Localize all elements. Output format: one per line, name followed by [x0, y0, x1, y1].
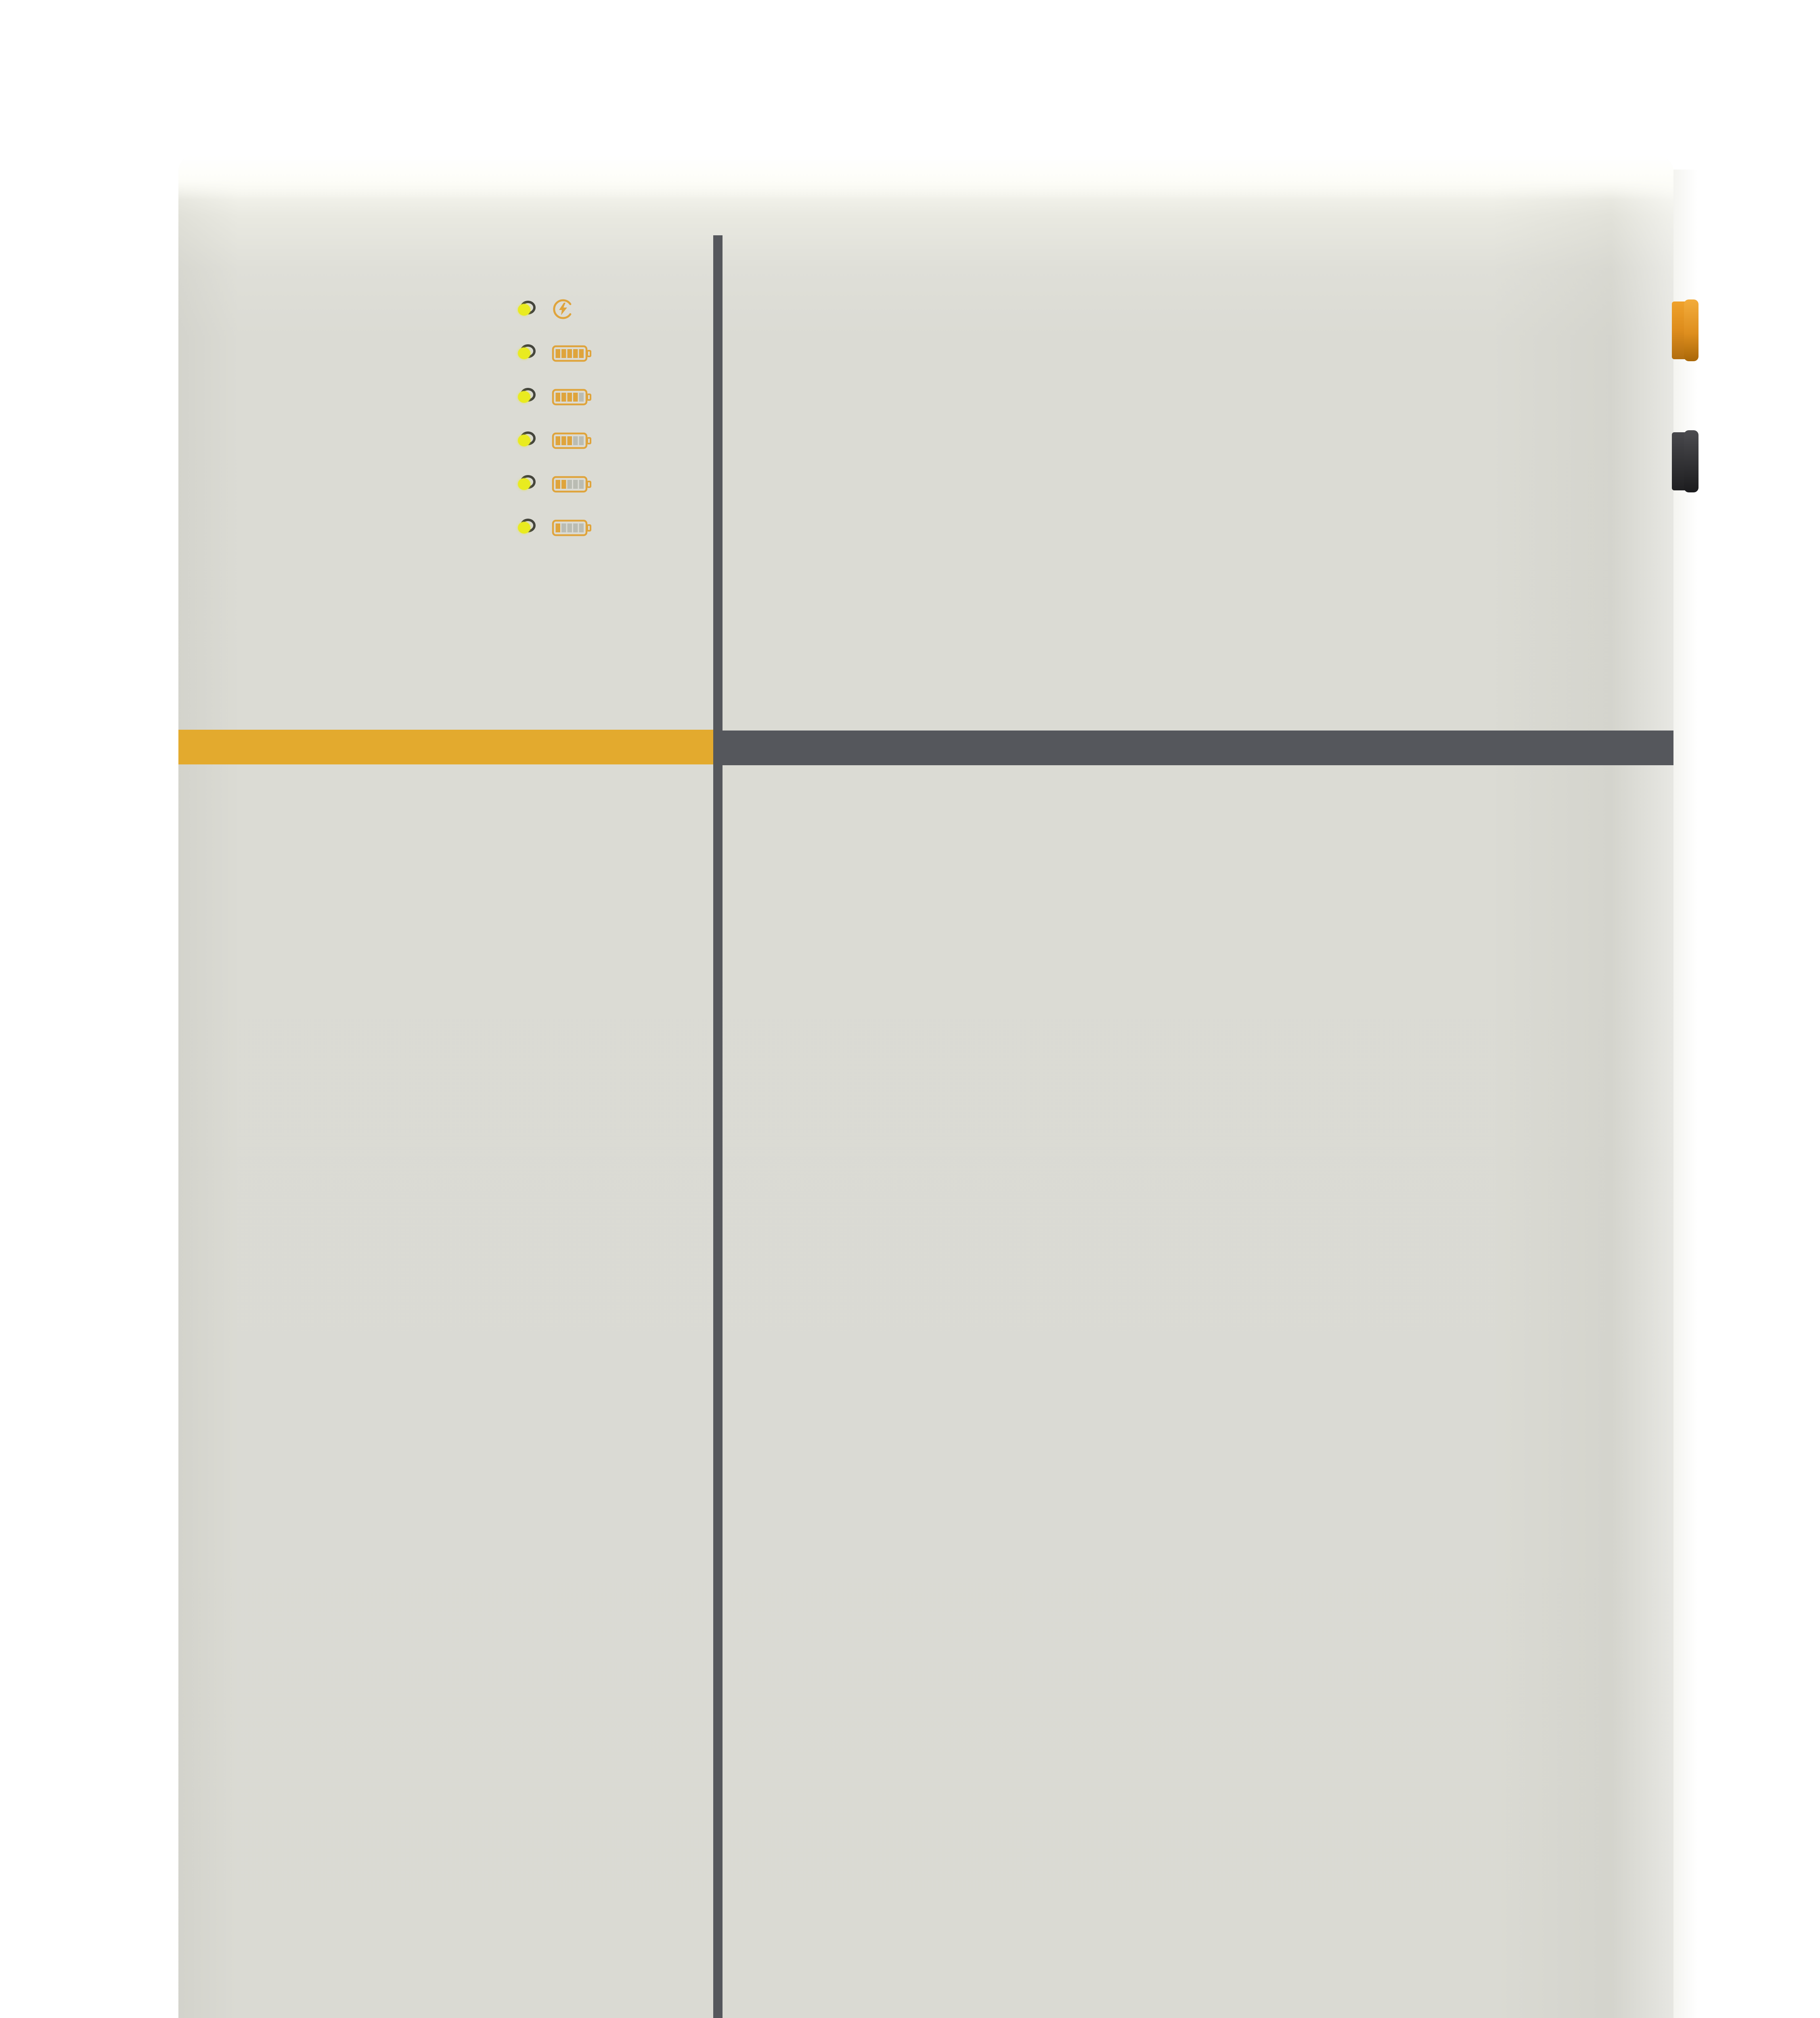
black-connector-cap: [1684, 430, 1699, 492]
led-dot: [518, 347, 530, 359]
led-row: [507, 472, 612, 496]
charge-circle-icon: [552, 298, 574, 320]
led-dot: [518, 391, 530, 403]
accent-stripe-dark: [723, 731, 1673, 765]
battery-cabinet-photo: TRIPLE POWER: [0, 0, 1820, 2018]
led-row: [507, 298, 612, 322]
battery-icon-slot: [552, 388, 592, 408]
battery-icon-slot: [552, 432, 592, 451]
battery-icon-slot: [552, 475, 592, 495]
black-side-connector: [1672, 432, 1690, 490]
charge-icon-slot: [552, 298, 574, 322]
cabinet-front-panel: [178, 155, 1673, 2018]
led-indicator-panel: [507, 287, 612, 553]
battery-icon-slot: [552, 519, 592, 538]
battery-level-icon: [552, 388, 592, 406]
led-row: [507, 385, 612, 409]
led-dot: [518, 304, 530, 316]
battery-level-icon: [552, 345, 592, 362]
orange-connector-cap: [1684, 299, 1699, 361]
vertical-seam-line: [713, 235, 723, 2018]
led-dot: [518, 435, 530, 446]
led-dot: [518, 522, 530, 534]
orange-side-connector: [1672, 301, 1690, 359]
accent-stripe-orange: [178, 730, 713, 764]
battery-icon-slot: [552, 345, 592, 364]
battery-level-icon: [552, 432, 592, 450]
cabinet-top-face: [178, 155, 1673, 200]
battery-level-icon: [552, 475, 592, 493]
battery-level-icon: [552, 519, 592, 537]
led-row: [507, 429, 612, 453]
led-dot: [518, 478, 530, 490]
led-row: [507, 341, 612, 366]
led-row: [507, 516, 612, 540]
